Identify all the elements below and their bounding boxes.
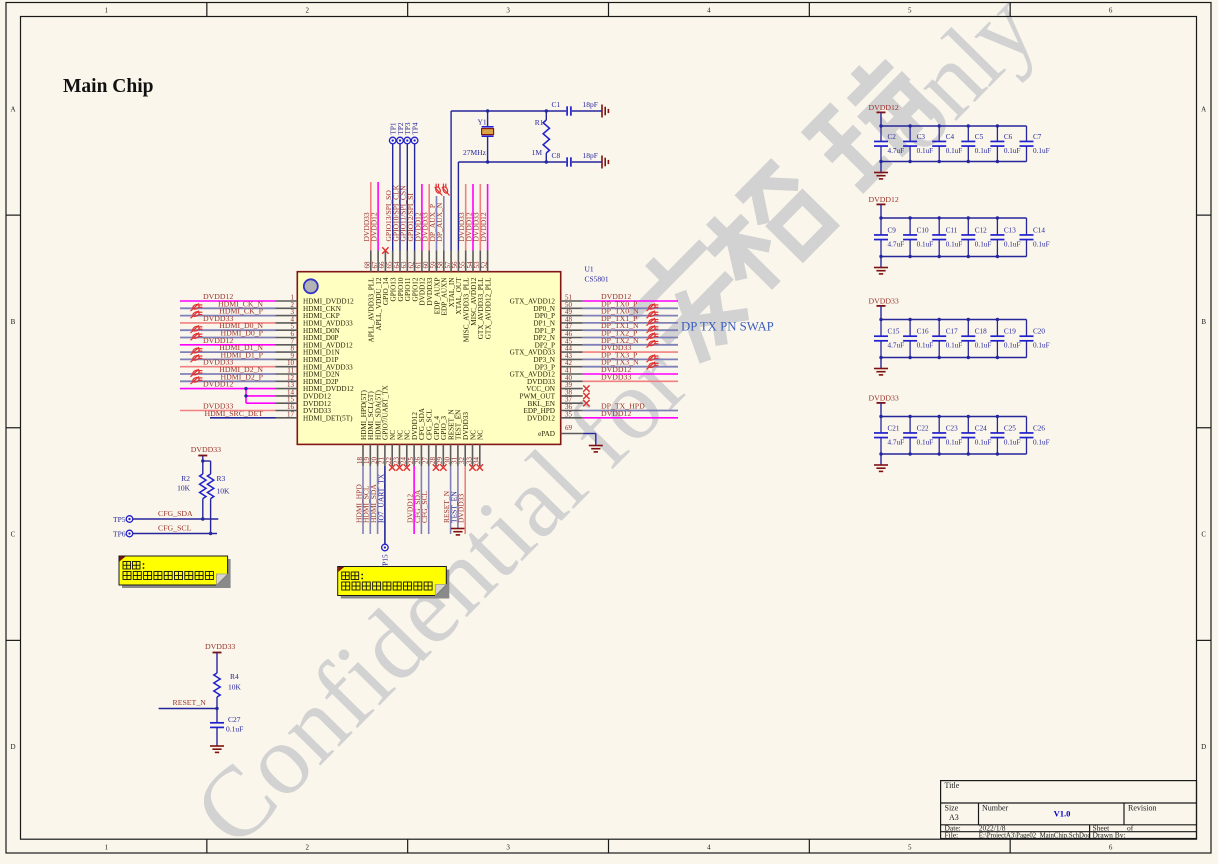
- svg-text:C19: C19: [1004, 328, 1016, 336]
- svg-text:0.1uF: 0.1uF: [1004, 342, 1021, 350]
- svg-text:DVDD12: DVDD12: [370, 212, 379, 241]
- svg-text:6: 6: [1109, 844, 1113, 852]
- svg-text:CFG_SDA: CFG_SDA: [158, 509, 193, 518]
- svg-text:4: 4: [707, 7, 711, 15]
- svg-text:TP5: TP5: [113, 515, 126, 524]
- svg-text:0.1uF: 0.1uF: [917, 438, 934, 446]
- svg-text:3: 3: [506, 7, 510, 15]
- svg-text:0.1uF: 0.1uF: [226, 725, 243, 734]
- svg-text:DVDD33: DVDD33: [191, 445, 221, 454]
- svg-text:C3: C3: [917, 133, 926, 141]
- svg-text:Revision: Revision: [1128, 804, 1156, 813]
- svg-text:C25: C25: [1004, 424, 1016, 432]
- svg-text:0.1uF: 0.1uF: [1033, 438, 1050, 446]
- svg-text:Size: Size: [945, 804, 959, 813]
- svg-text:0.1uF: 0.1uF: [946, 147, 963, 155]
- svg-text:5: 5: [908, 7, 912, 15]
- svg-text:4.7uF: 4.7uF: [888, 240, 905, 248]
- svg-text:C2: C2: [888, 133, 897, 141]
- svg-text:File:: File:: [945, 831, 959, 840]
- svg-text:CFG_SCL: CFG_SCL: [158, 524, 192, 533]
- svg-text:Y1: Y1: [478, 118, 487, 127]
- svg-text:C24: C24: [975, 424, 987, 432]
- svg-text:C17: C17: [946, 328, 958, 336]
- svg-text:C5: C5: [975, 133, 984, 141]
- svg-text:4: 4: [707, 844, 711, 852]
- svg-text:0.1uF: 0.1uF: [946, 438, 963, 446]
- svg-text:1M: 1M: [532, 148, 543, 157]
- svg-text:52: 52: [480, 261, 488, 269]
- svg-text:B: B: [1201, 318, 1206, 326]
- svg-text:0.1uF: 0.1uF: [975, 438, 992, 446]
- svg-text:Main Chip: Main Chip: [63, 76, 154, 97]
- svg-text:C9: C9: [888, 226, 897, 234]
- svg-text:0.1uF: 0.1uF: [975, 240, 992, 248]
- svg-text:0.1uF: 0.1uF: [917, 147, 934, 155]
- svg-text:2: 2: [306, 844, 310, 852]
- svg-text:1: 1: [105, 7, 109, 15]
- svg-text:Drawn By:: Drawn By:: [1093, 831, 1126, 840]
- svg-text:0.1uF: 0.1uF: [1033, 342, 1050, 350]
- svg-text:R4: R4: [230, 672, 239, 681]
- svg-text:4.7uF: 4.7uF: [888, 147, 905, 155]
- svg-text:0.1uF: 0.1uF: [1033, 147, 1050, 155]
- svg-text:17: 17: [287, 410, 295, 418]
- svg-text:69: 69: [565, 424, 573, 432]
- svg-text:IO7_UART_TX: IO7_UART_TX: [376, 473, 385, 523]
- svg-text:4.7uF: 4.7uF: [888, 342, 905, 350]
- svg-text:4.7uF: 4.7uF: [888, 438, 905, 446]
- svg-text:C18: C18: [975, 328, 987, 336]
- svg-text:of: of: [1127, 824, 1134, 833]
- svg-text:RESET_N: RESET_N: [173, 698, 207, 707]
- svg-text:DVDD12: DVDD12: [601, 409, 631, 418]
- svg-text:Title: Title: [945, 781, 960, 790]
- svg-text:C13: C13: [1004, 226, 1016, 234]
- svg-text:C22: C22: [917, 424, 929, 432]
- svg-text:10K: 10K: [177, 484, 191, 493]
- svg-text:DP TX PN SWAP: DP TX PN SWAP: [681, 320, 774, 334]
- svg-text:A: A: [1201, 105, 1206, 113]
- svg-text:0.1uF: 0.1uF: [946, 240, 963, 248]
- svg-text:C23: C23: [946, 424, 958, 432]
- svg-text:2: 2: [306, 7, 310, 15]
- svg-text:2022/1/8: 2022/1/8: [979, 824, 1006, 833]
- svg-text:C6: C6: [1004, 133, 1013, 141]
- svg-text:ePAD: ePAD: [538, 430, 555, 438]
- svg-text:C4: C4: [946, 133, 955, 141]
- svg-text:DVDD12: DVDD12: [527, 414, 555, 422]
- svg-text:10K: 10K: [217, 487, 231, 496]
- svg-text:C21: C21: [888, 424, 900, 432]
- svg-text:Number: Number: [982, 804, 1009, 813]
- svg-text:TP4: TP4: [411, 122, 419, 134]
- svg-text:C14: C14: [1033, 226, 1045, 234]
- svg-text:1: 1: [105, 844, 109, 852]
- svg-text:27MHz: 27MHz: [463, 148, 487, 157]
- svg-text:D: D: [10, 743, 15, 751]
- svg-text:CFG_SCL: CFG_SCL: [420, 490, 429, 523]
- svg-text:C10: C10: [917, 226, 929, 234]
- svg-text:C: C: [1201, 531, 1206, 539]
- svg-text:GTX_AVDD12_PLL: GTX_AVDD12_PLL: [484, 278, 492, 340]
- svg-text:18pF: 18pF: [583, 151, 598, 160]
- svg-text:DVDD33: DVDD33: [601, 372, 631, 381]
- svg-text:E:\ProjectA3\Page02_MainChip.S: E:\ProjectA3\Page02_MainChip.SchDoc: [979, 833, 1091, 840]
- svg-text:0.1uF: 0.1uF: [917, 240, 934, 248]
- svg-text:D: D: [1201, 743, 1206, 751]
- svg-text:DVDD12: DVDD12: [869, 103, 899, 112]
- svg-text:TP6: TP6: [113, 530, 126, 539]
- svg-text:DVDD33: DVDD33: [869, 297, 899, 306]
- svg-text:HDMI_DET(5T): HDMI_DET(5T): [303, 414, 353, 422]
- svg-text:0.1uF: 0.1uF: [946, 342, 963, 350]
- svg-text:DVDD33: DVDD33: [205, 642, 235, 651]
- svg-text:R2: R2: [181, 474, 190, 483]
- svg-text:C11: C11: [946, 226, 958, 234]
- svg-text:C27: C27: [228, 715, 241, 724]
- svg-text:10K: 10K: [228, 683, 242, 692]
- svg-text:V1.0: V1.0: [1054, 809, 1071, 819]
- svg-text:C7: C7: [1033, 133, 1042, 141]
- svg-text:R3: R3: [217, 474, 226, 483]
- svg-text:18pF: 18pF: [583, 100, 598, 109]
- svg-text:DVDD33: DVDD33: [457, 494, 466, 523]
- svg-text:0.1uF: 0.1uF: [975, 147, 992, 155]
- svg-text:C26: C26: [1033, 424, 1045, 432]
- svg-text:DVDD12: DVDD12: [479, 212, 488, 241]
- svg-text:A3: A3: [949, 813, 959, 822]
- svg-text:5: 5: [908, 844, 912, 852]
- svg-text:C: C: [11, 531, 16, 539]
- svg-text:34: 34: [473, 457, 481, 465]
- svg-text:C16: C16: [917, 328, 929, 336]
- svg-text:DP_AUX_N: DP_AUX_N: [435, 202, 444, 241]
- svg-text:U1: U1: [585, 265, 594, 274]
- svg-text:CS5801: CS5801: [585, 275, 609, 284]
- svg-text:C15: C15: [888, 328, 900, 336]
- svg-text:DVDD33: DVDD33: [869, 394, 899, 403]
- svg-text:DVDD12: DVDD12: [203, 380, 233, 389]
- svg-text:A: A: [10, 105, 15, 113]
- svg-text:3: 3: [506, 844, 510, 852]
- svg-text:0.1uF: 0.1uF: [1004, 147, 1021, 155]
- svg-text:35: 35: [565, 410, 573, 418]
- svg-text:6: 6: [1109, 7, 1113, 15]
- svg-text:0.1uF: 0.1uF: [1033, 240, 1050, 248]
- svg-text:B: B: [11, 318, 16, 326]
- svg-text:C8: C8: [552, 151, 561, 160]
- svg-text:R1: R1: [535, 118, 544, 127]
- svg-text:C20: C20: [1033, 328, 1045, 336]
- svg-text:0.1uF: 0.1uF: [917, 342, 934, 350]
- svg-text:0.1uF: 0.1uF: [1004, 240, 1021, 248]
- svg-text:DVDD12: DVDD12: [869, 195, 899, 204]
- svg-text:0.1uF: 0.1uF: [1004, 438, 1021, 446]
- svg-text:HDMI_SRC_DET: HDMI_SRC_DET: [205, 409, 264, 418]
- svg-text:C1: C1: [552, 100, 561, 109]
- svg-text:0.1uF: 0.1uF: [975, 342, 992, 350]
- svg-text:C12: C12: [975, 226, 987, 234]
- svg-text:NC: NC: [477, 430, 485, 440]
